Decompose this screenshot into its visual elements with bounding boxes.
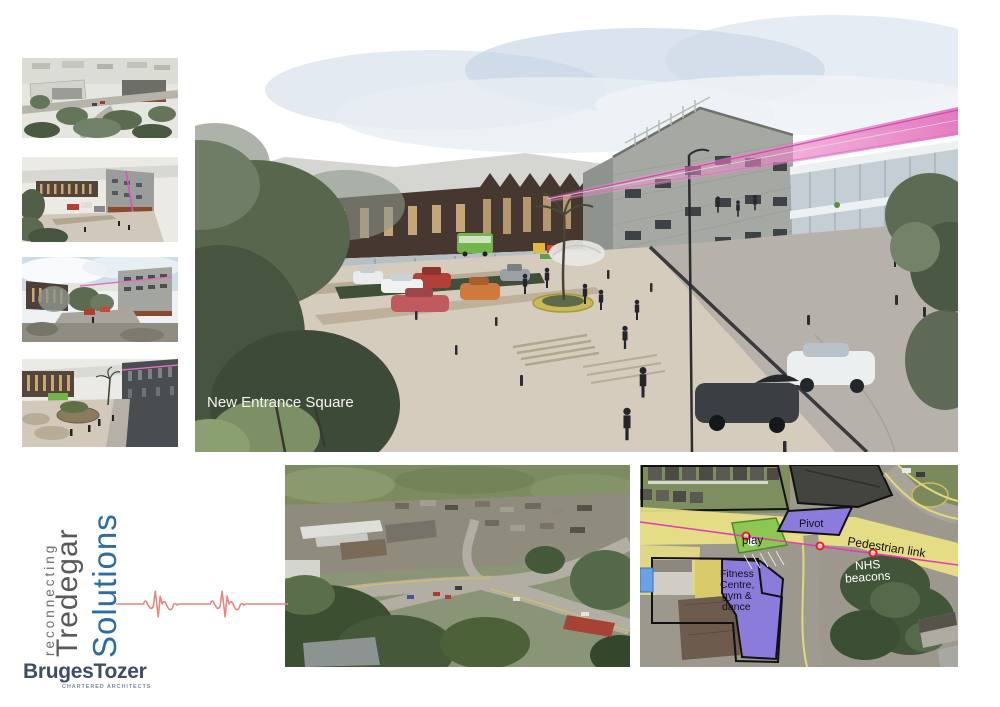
- bus: [457, 233, 493, 257]
- fitness-label-4: dance: [722, 601, 751, 613]
- pivot-label: Pivot: [799, 518, 823, 530]
- main-render-caption: New Entrance Square: [207, 394, 354, 411]
- firm-subtitle: CHARTERED ARCHITECTS: [62, 684, 151, 690]
- thumbnail-aerial-overview-2: [22, 157, 178, 242]
- firm-logo: BrugesTozer: [23, 660, 147, 684]
- site-plan-map: Pivot play Pedestrian link NHS beacons F…: [640, 465, 958, 667]
- thumbnail-aerial-overview-1: [22, 58, 178, 138]
- heartbeat-ecg-graphic: [116, 588, 288, 622]
- tagline-tredegar: Tredegar: [53, 528, 83, 657]
- beacon-node: [817, 543, 824, 550]
- main-render-new-entrance-square: New Entrance Square: [195, 15, 958, 452]
- play-label: play: [742, 535, 763, 547]
- thumbnail-street-approach: [22, 257, 178, 342]
- aerial-photo-tredegar: [285, 465, 630, 667]
- thumbnail-plaza-view: [22, 359, 178, 447]
- tagline-solutions: Solutions: [88, 513, 121, 658]
- presentation-board: New Entrance Square: [0, 0, 1000, 707]
